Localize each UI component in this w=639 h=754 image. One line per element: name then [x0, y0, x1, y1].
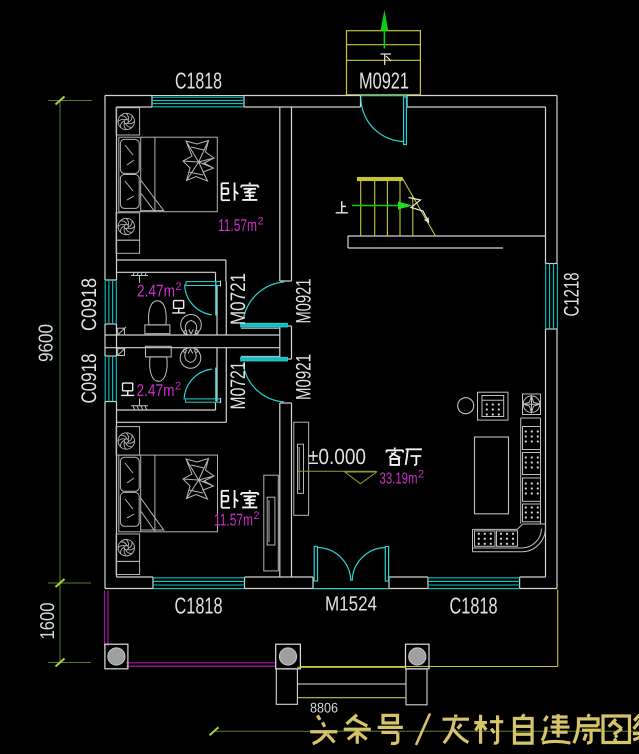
- svg-text:8806: 8806: [310, 700, 338, 716]
- svg-text:2.47m: 2.47m: [137, 282, 175, 301]
- svg-text:M1524: M1524: [325, 593, 377, 616]
- svg-text:33.19m: 33.19m: [380, 471, 418, 488]
- svg-text:C1818: C1818: [175, 593, 223, 619]
- svg-text:C1818: C1818: [175, 68, 222, 94]
- svg-text:2: 2: [175, 381, 181, 393]
- svg-text:M0921: M0921: [359, 68, 409, 94]
- svg-text:2: 2: [254, 510, 260, 522]
- svg-text:11.57m: 11.57m: [214, 511, 253, 530]
- svg-text:2: 2: [418, 469, 424, 481]
- svg-text:±0.000: ±0.000: [308, 444, 366, 469]
- svg-text:1600: 1600: [37, 603, 59, 640]
- svg-text:M0921: M0921: [293, 279, 316, 324]
- svg-text:C0918: C0918: [78, 354, 101, 404]
- svg-text:2.47m: 2.47m: [137, 381, 175, 400]
- svg-text:M0921: M0921: [293, 354, 316, 400]
- svg-text:11.57m: 11.57m: [218, 216, 257, 235]
- svg-text:2: 2: [258, 216, 264, 228]
- svg-text:M0721: M0721: [227, 273, 250, 325]
- svg-text:C0918: C0918: [78, 278, 101, 331]
- svg-text:2: 2: [176, 281, 182, 293]
- svg-text:9600: 9600: [36, 324, 58, 362]
- svg-text:C1218: C1218: [561, 273, 584, 317]
- svg-text:C1818: C1818: [450, 593, 498, 619]
- svg-text:M0721: M0721: [227, 362, 250, 410]
